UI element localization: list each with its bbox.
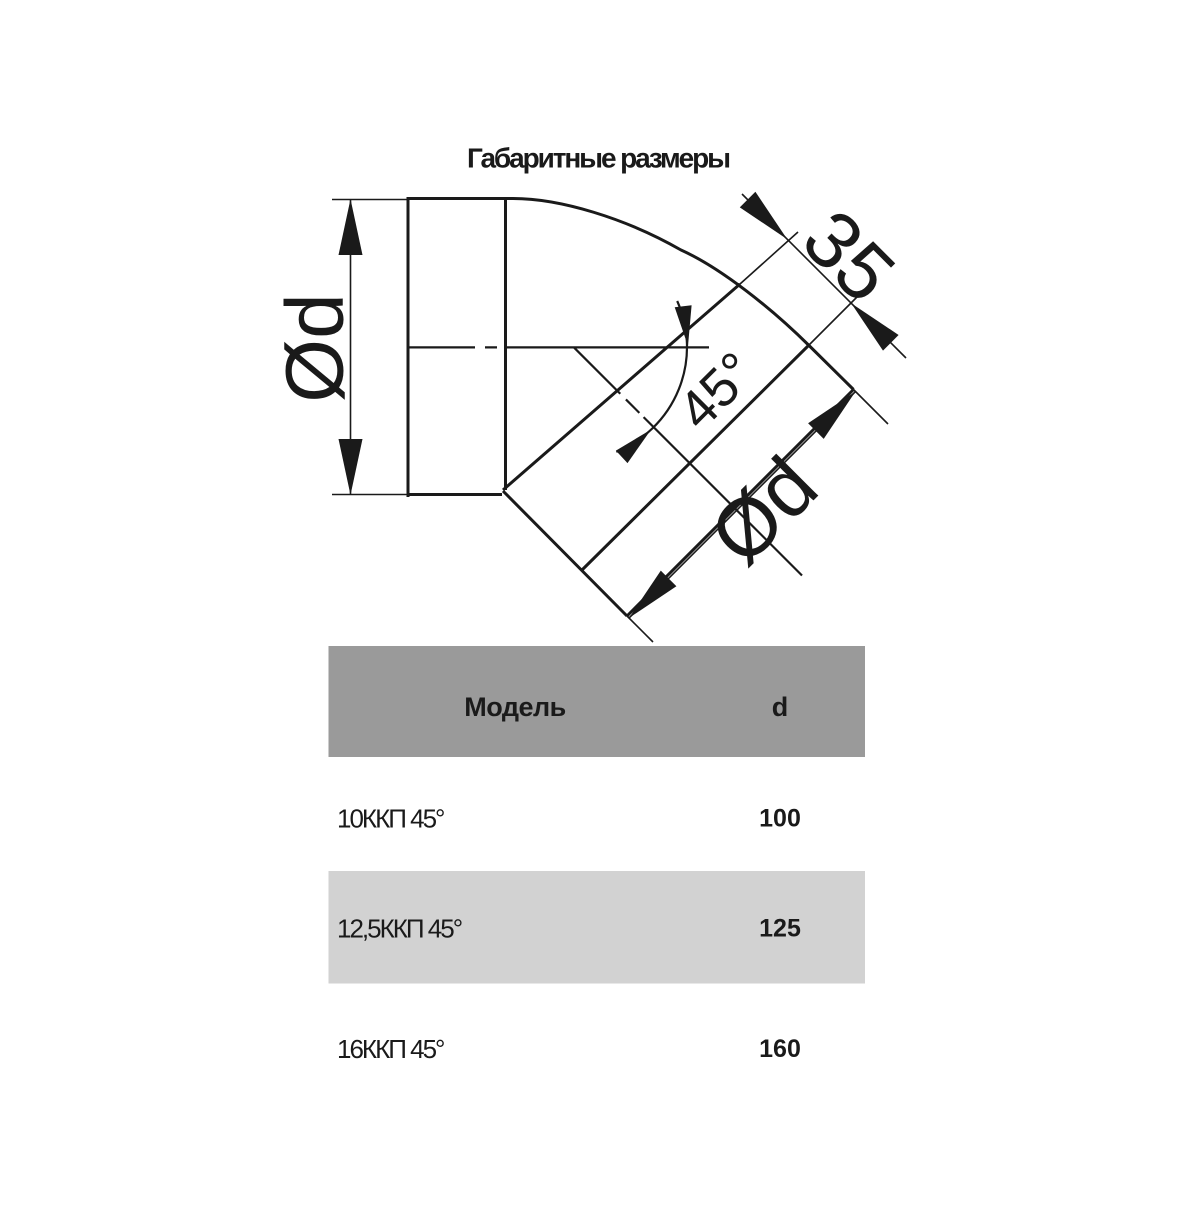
svg-text:Модель: Модель (464, 692, 566, 722)
svg-text:12,5ККП 45°: 12,5ККП 45° (337, 914, 462, 944)
svg-text:Габаритные размеры: Габаритные размеры (467, 143, 729, 174)
svg-text:100: 100 (759, 805, 801, 833)
svg-text:125: 125 (759, 915, 801, 943)
svg-text:d: d (772, 692, 789, 722)
svg-text:160: 160 (759, 1035, 801, 1063)
svg-text:10ККП 45°: 10ККП 45° (337, 804, 444, 834)
svg-text:16ККП 45°: 16ККП 45° (337, 1034, 444, 1064)
svg-text:Ød: Ød (270, 293, 361, 402)
